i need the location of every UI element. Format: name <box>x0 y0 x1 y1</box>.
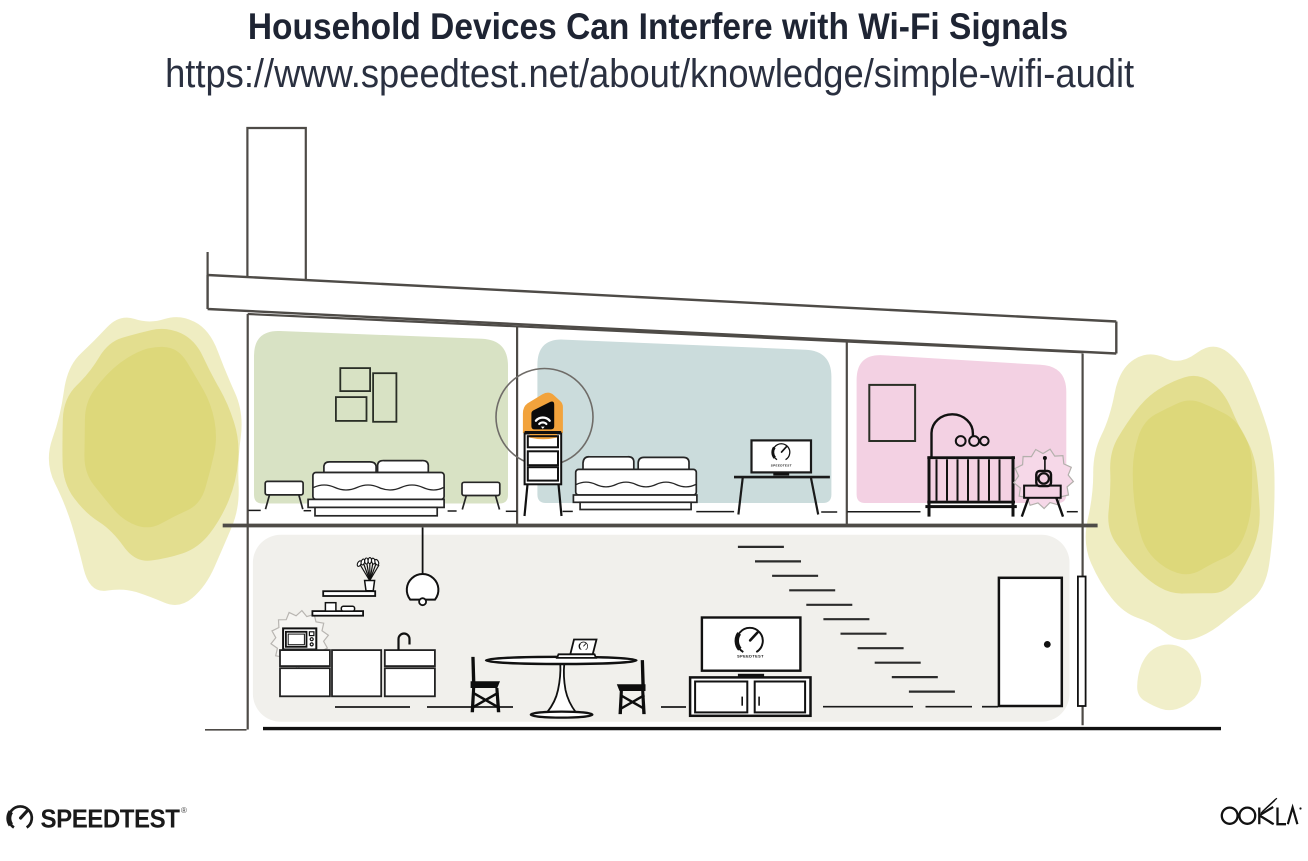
svg-text:SPEEDTEST: SPEEDTEST <box>771 464 792 468</box>
svg-text:SPEEDTEST: SPEEDTEST <box>41 805 181 833</box>
svg-text:®: ® <box>181 806 187 815</box>
svg-text:SPEEDTEST: SPEEDTEST <box>737 654 764 659</box>
